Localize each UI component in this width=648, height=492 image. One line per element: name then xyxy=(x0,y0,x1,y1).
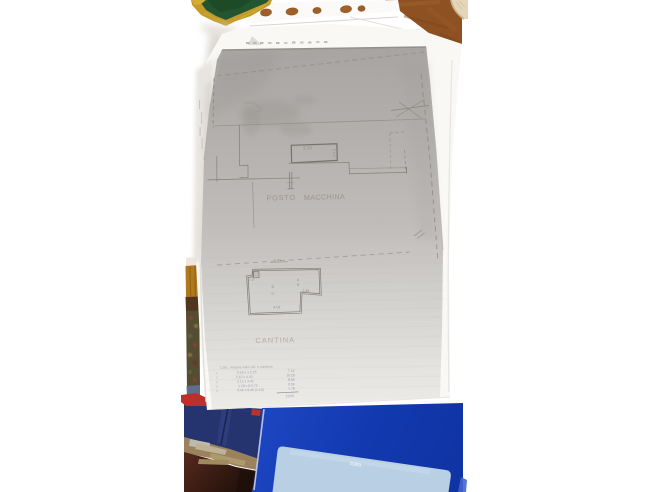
svg-text:4.46 x 0.40 (1.10): 4.46 x 0.40 (1.10) xyxy=(237,388,264,392)
svg-text:8.84: 8.84 xyxy=(288,378,295,382)
svg-text:2.45: 2.45 xyxy=(303,289,310,293)
svg-text:23.65: 23.65 xyxy=(286,394,295,398)
svg-text:MACCHINA: MACCHINA xyxy=(304,192,345,202)
svg-text:CANTINA: CANTINA xyxy=(255,335,295,345)
svg-text:3.10: 3.10 xyxy=(303,145,312,150)
svg-text:3.60: 3.60 xyxy=(274,258,283,263)
svg-text:4: 4 xyxy=(297,278,299,282)
svg-text:5: 5 xyxy=(297,283,299,287)
svg-text:5: 5 xyxy=(272,285,274,289)
svg-text:4.01: 4.01 xyxy=(273,305,282,310)
svg-text:o: o xyxy=(272,292,274,296)
svg-text:1.78: 1.78 xyxy=(288,387,295,391)
svg-text:10.20: 10.20 xyxy=(286,373,295,377)
svg-text:7.14: 7.14 xyxy=(288,369,295,373)
svg-text:POSTO: POSTO xyxy=(266,193,296,203)
